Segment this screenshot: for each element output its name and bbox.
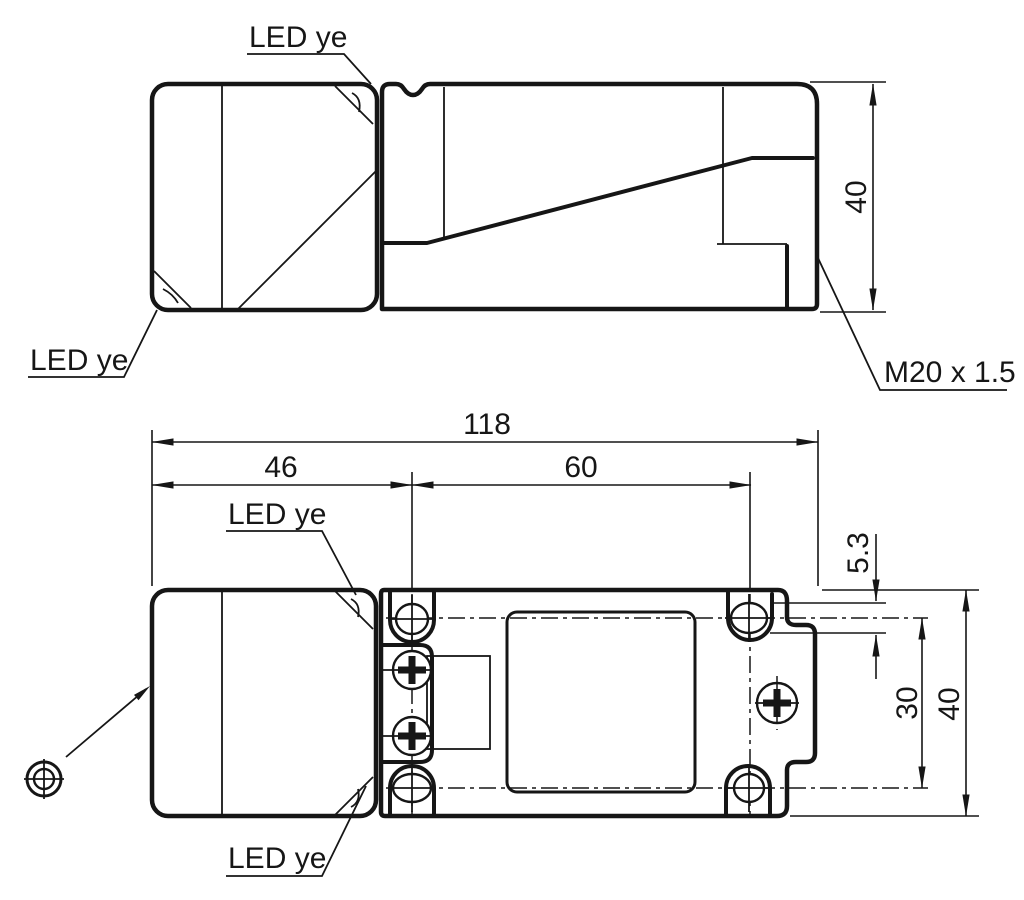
- dim-text-overall-length: 118: [463, 408, 511, 441]
- led-label-text: LED ye: [30, 344, 128, 377]
- dim-head-length-46: 46: [152, 451, 412, 485]
- dim-height-40: 40: [810, 82, 886, 312]
- sensor-head-side: [152, 84, 377, 310]
- dim-overall-length-118: 118: [152, 408, 818, 586]
- dim-text-hole-spacing-x: 60: [564, 451, 597, 484]
- led-leader-line: [226, 531, 356, 595]
- dim-width-40: 40: [790, 590, 979, 816]
- dim-hole-spacing-y-30: 30: [891, 618, 924, 788]
- dim-hole-spacing-x-60: 60: [412, 451, 751, 485]
- sensing-face-indicator: [24, 686, 150, 799]
- thread-label-text: M20 x 1.5: [884, 356, 1016, 389]
- led-label-text: LED ye: [249, 21, 347, 54]
- dim-text-hole-diameter: 5.3: [842, 532, 875, 574]
- side-view: LED ye LED ye 40 M20 x 1.5: [28, 21, 1016, 390]
- dim-text-width: 40: [933, 687, 966, 720]
- led-label-top: LED ye: [226, 498, 356, 595]
- led-leader-line: [247, 54, 371, 84]
- dim-text-height: 40: [840, 180, 873, 213]
- led-label-side-bottom: LED ye: [28, 310, 157, 377]
- top-view: LED ye LED ye 118 46: [24, 408, 979, 876]
- sensor-head-top: [152, 590, 376, 816]
- sensor-dimension-drawing: LED ye LED ye 40 M20 x 1.5: [0, 0, 1024, 900]
- dim-text-hole-spacing-y: 30: [891, 686, 924, 719]
- direction-arrow-shaft: [66, 689, 146, 757]
- led-label-text: LED ye: [228, 498, 326, 531]
- led-label-side-top: LED ye: [247, 21, 371, 84]
- dim-text-head-length: 46: [264, 451, 297, 484]
- led-label-text: LED ye: [228, 842, 326, 875]
- thread-label: M20 x 1.5: [818, 258, 1016, 390]
